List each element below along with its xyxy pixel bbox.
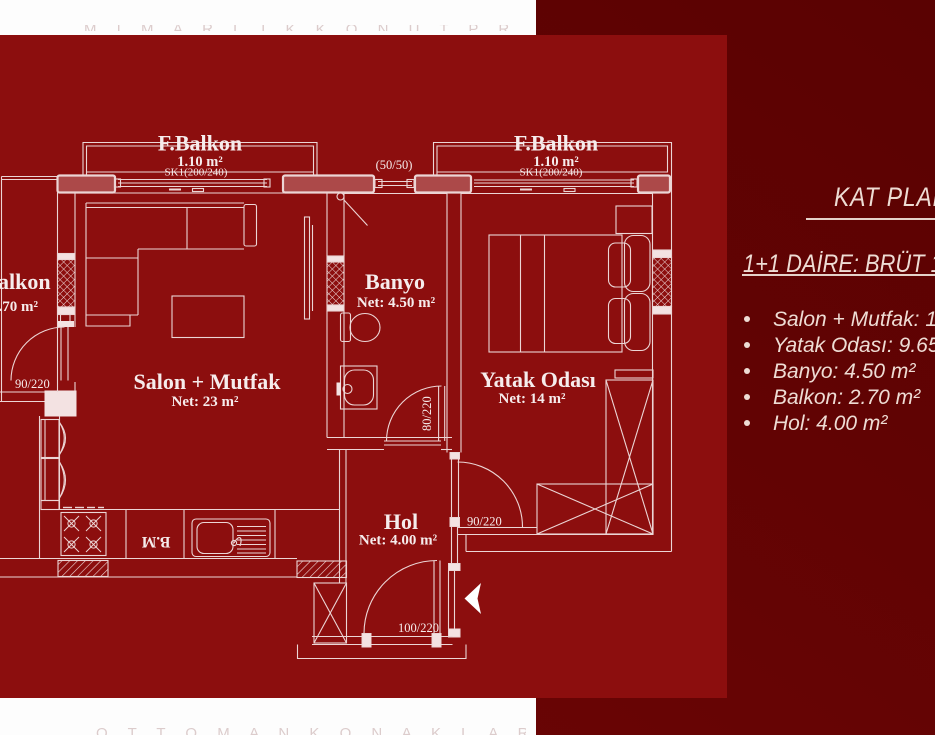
svg-text:Banyo: Banyo (365, 269, 425, 294)
svg-text:B.M: B.M (141, 533, 170, 550)
svg-text:2.70 m²: 2.70 m² (0, 299, 38, 315)
svg-text:80/220: 80/220 (420, 396, 434, 431)
svg-text:Net: 23 m²: Net: 23 m² (172, 394, 239, 410)
svg-text:Balkon: Balkon (0, 269, 51, 294)
svg-text:100/220: 100/220 (398, 621, 439, 635)
svg-text:SK1(200/240): SK1(200/240) (165, 167, 228, 179)
svg-text:90/220: 90/220 (467, 515, 502, 529)
svg-text:Salon + Mutfak: Salon + Mutfak (133, 369, 281, 394)
svg-text:F.Balkon: F.Balkon (514, 131, 598, 156)
svg-text:Net: 4.50 m²: Net: 4.50 m² (357, 295, 436, 311)
svg-text:Hol: Hol (384, 509, 418, 534)
svg-text:(50/50): (50/50) (376, 158, 413, 172)
svg-text:F.Balkon: F.Balkon (158, 131, 242, 156)
svg-text:SK1(200/240): SK1(200/240) (520, 167, 583, 179)
svg-text:Yatak Odası: Yatak Odası (480, 367, 596, 392)
svg-text:90/220: 90/220 (15, 377, 50, 391)
svg-text:Net: 4.00 m²: Net: 4.00 m² (359, 533, 438, 549)
svg-text:Net: 14 m²: Net: 14 m² (499, 391, 566, 407)
